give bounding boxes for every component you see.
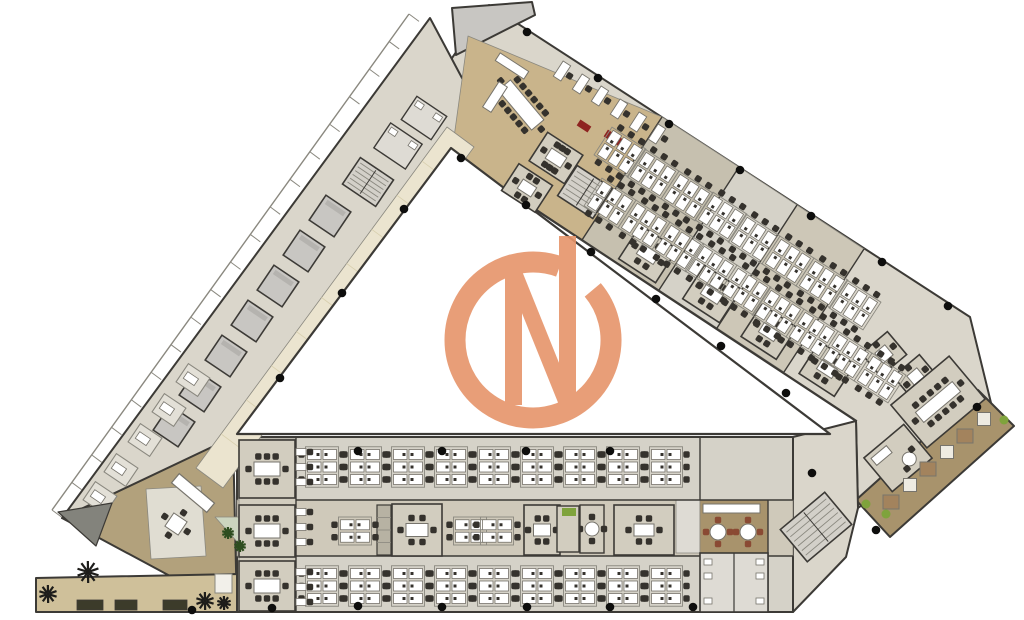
monitor <box>626 585 629 588</box>
chair <box>427 570 433 576</box>
wc-fixture <box>704 598 712 604</box>
monitor <box>325 585 328 588</box>
monitor <box>489 597 492 600</box>
monitor <box>669 478 672 481</box>
chair <box>656 527 662 533</box>
chair <box>599 464 605 470</box>
monitor <box>446 466 449 469</box>
column-dot <box>354 602 363 611</box>
plant-center <box>227 532 230 535</box>
monitor <box>465 536 468 539</box>
monitor <box>583 478 586 481</box>
chair <box>255 515 261 521</box>
monitor <box>626 453 629 456</box>
chair <box>625 527 631 533</box>
wall-line <box>241 544 246 546</box>
chair <box>419 515 425 521</box>
chair <box>307 569 313 575</box>
furniture-group <box>392 504 442 556</box>
chair <box>473 522 479 528</box>
column-dot <box>736 166 745 175</box>
table <box>634 524 654 536</box>
chair <box>514 534 520 540</box>
monitor <box>403 597 406 600</box>
chair <box>642 595 648 601</box>
chair <box>307 479 313 485</box>
column-dot <box>606 447 615 456</box>
monitor <box>350 536 353 539</box>
wc-fixture <box>704 573 712 579</box>
chair <box>470 595 476 601</box>
column-dot <box>665 120 674 129</box>
column-dot <box>782 389 791 398</box>
column-dot <box>807 212 816 221</box>
monitor <box>497 478 500 481</box>
monitor <box>360 597 363 600</box>
monitor <box>317 585 320 588</box>
monitor <box>360 478 363 481</box>
chair <box>427 451 433 457</box>
monitor <box>465 523 468 526</box>
chair <box>427 595 433 601</box>
chair <box>384 476 390 482</box>
chair <box>384 595 390 601</box>
monitor <box>575 478 578 481</box>
monitor <box>500 523 503 526</box>
monitor <box>317 453 320 456</box>
monitor <box>540 572 543 575</box>
chair <box>307 524 313 530</box>
monitor <box>360 572 363 575</box>
plant-center <box>46 592 50 596</box>
terrace-bench <box>163 600 187 610</box>
monitor <box>532 585 535 588</box>
monitor <box>411 572 414 575</box>
chair <box>384 570 390 576</box>
monitor <box>325 597 328 600</box>
wall-line <box>229 531 234 533</box>
chair <box>272 570 278 576</box>
chair <box>646 538 652 544</box>
monitor <box>446 572 449 575</box>
chair <box>745 517 751 523</box>
table <box>254 579 280 593</box>
monitor <box>661 597 664 600</box>
monitor <box>532 478 535 481</box>
chair <box>307 584 313 590</box>
monitor <box>575 453 578 456</box>
lounge-plant <box>1000 416 1009 425</box>
monitor <box>454 597 457 600</box>
wall-line <box>222 533 227 535</box>
chair <box>683 570 689 576</box>
furniture-group <box>239 561 295 611</box>
monitor <box>368 597 371 600</box>
touchdown-desk <box>296 584 306 591</box>
monitor <box>669 466 672 469</box>
monitor <box>575 597 578 600</box>
wc-fixture <box>704 559 712 565</box>
terrace-planter <box>215 574 232 593</box>
chair <box>733 529 739 535</box>
chair <box>513 583 519 589</box>
chair <box>384 464 390 470</box>
floor-plan-canvas <box>0 0 1024 620</box>
chair <box>307 539 313 545</box>
terrace-bench <box>77 600 103 610</box>
lounge-sofa <box>957 429 973 443</box>
table <box>406 524 428 537</box>
monitor <box>583 453 586 456</box>
chair <box>255 478 261 484</box>
monitor <box>532 572 535 575</box>
monitor <box>454 585 457 588</box>
touchdown-desk <box>296 524 306 531</box>
chair <box>556 583 562 589</box>
chair <box>642 451 648 457</box>
plant-center <box>222 601 225 604</box>
chair <box>642 583 648 589</box>
monitor <box>411 453 414 456</box>
chair <box>419 539 425 545</box>
cafe-table <box>710 524 726 540</box>
monitor <box>360 466 363 469</box>
chair <box>264 478 270 484</box>
monitor <box>489 466 492 469</box>
column-dot <box>268 604 277 613</box>
monitor <box>446 478 449 481</box>
chair <box>307 599 313 605</box>
monitor <box>532 597 535 600</box>
column-dot <box>354 447 363 456</box>
monitor <box>403 466 406 469</box>
monitor <box>358 523 361 526</box>
chair <box>715 517 721 523</box>
column-dot <box>457 154 466 163</box>
wall-line <box>310 152 320 159</box>
chair <box>408 515 414 521</box>
monitor <box>583 597 586 600</box>
planter-box <box>562 508 576 516</box>
chair <box>341 570 347 576</box>
column-dot <box>522 201 531 210</box>
chair <box>513 570 519 576</box>
chair <box>272 540 278 546</box>
chair <box>255 570 261 576</box>
monitor <box>497 572 500 575</box>
chair <box>683 595 689 601</box>
chair <box>535 538 541 544</box>
monitor <box>540 597 543 600</box>
chair <box>556 464 562 470</box>
furniture-group <box>296 464 313 471</box>
monitor <box>350 523 353 526</box>
monitor <box>626 597 629 600</box>
chair <box>272 453 278 459</box>
plant-center <box>203 599 207 603</box>
chair <box>372 534 378 540</box>
furniture-group <box>614 505 674 555</box>
monitor <box>411 597 414 600</box>
monitor <box>583 572 586 575</box>
chair <box>341 476 347 482</box>
lounge-seat <box>904 479 917 492</box>
wall-line <box>112 427 122 434</box>
monitor <box>454 466 457 469</box>
chair <box>255 453 261 459</box>
monitor <box>626 478 629 481</box>
wall-line <box>191 317 201 324</box>
chair <box>427 583 433 589</box>
furniture-group <box>296 524 313 531</box>
monitor <box>317 572 320 575</box>
monitor <box>358 536 361 539</box>
column-dot <box>944 302 953 311</box>
furniture-group <box>239 440 295 498</box>
chair <box>513 476 519 482</box>
chair <box>384 583 390 589</box>
furniture-group <box>296 599 313 606</box>
monitor <box>583 466 586 469</box>
monitor <box>454 453 457 456</box>
monitor <box>411 585 414 588</box>
chair <box>683 464 689 470</box>
touchdown-desk <box>296 599 306 606</box>
chair <box>599 595 605 601</box>
lounge-seat <box>941 446 954 459</box>
furniture-group <box>296 449 313 456</box>
wall-line <box>389 42 399 49</box>
wall-line <box>131 400 141 407</box>
wall-line <box>290 179 300 186</box>
column-dot <box>594 74 603 83</box>
column-dot <box>587 248 596 257</box>
chair <box>331 534 337 540</box>
chair <box>331 522 337 528</box>
monitor <box>317 478 320 481</box>
chair <box>636 538 642 544</box>
column-dot <box>523 603 532 612</box>
monitor <box>325 453 328 456</box>
monitor <box>618 585 621 588</box>
monitor <box>669 597 672 600</box>
chair <box>372 522 378 528</box>
chair <box>272 595 278 601</box>
touchdown-desk <box>296 569 306 576</box>
furniture-group <box>296 509 313 516</box>
monitor <box>540 478 543 481</box>
furniture-group <box>577 505 607 553</box>
monitor <box>368 466 371 469</box>
chair <box>341 583 347 589</box>
wall-line <box>92 455 102 462</box>
monitor <box>661 585 664 588</box>
wall-line <box>171 345 181 352</box>
column-dot <box>438 447 447 456</box>
chair <box>556 451 562 457</box>
lounge-sofa <box>920 462 936 476</box>
monitor <box>411 478 414 481</box>
cafe-table <box>740 524 756 540</box>
chair <box>513 451 519 457</box>
monitor <box>540 585 543 588</box>
monitor <box>618 572 621 575</box>
chair <box>307 449 313 455</box>
column-dot <box>973 403 982 412</box>
monitor <box>446 453 449 456</box>
monitor <box>669 453 672 456</box>
monitor <box>618 453 621 456</box>
wc-fixture <box>756 573 764 579</box>
monitor <box>497 466 500 469</box>
chair <box>646 515 652 521</box>
chair <box>513 464 519 470</box>
chair <box>282 466 288 472</box>
lounge-plant <box>862 500 871 509</box>
chair <box>599 570 605 576</box>
monitor <box>500 536 503 539</box>
chair <box>430 527 436 533</box>
monitor <box>669 572 672 575</box>
chair <box>599 476 605 482</box>
wall-line <box>250 234 260 241</box>
monitor <box>492 523 495 526</box>
chair <box>264 595 270 601</box>
wall-line <box>211 290 221 297</box>
chair <box>427 464 433 470</box>
wall-line <box>234 546 239 548</box>
monitor <box>317 597 320 600</box>
chair <box>599 583 605 589</box>
table <box>534 524 551 536</box>
monitor <box>540 453 543 456</box>
chair <box>703 529 709 535</box>
touchdown-desk <box>296 479 306 486</box>
monitor <box>661 466 664 469</box>
column-dot <box>438 603 447 612</box>
column-dot <box>523 28 532 37</box>
touchdown-desk <box>296 539 306 546</box>
wall-line <box>231 262 241 269</box>
monitor <box>532 466 535 469</box>
plant-center <box>239 545 242 548</box>
monitor <box>661 572 664 575</box>
monitor <box>618 478 621 481</box>
monitor <box>618 597 621 600</box>
column-dot <box>400 205 409 214</box>
wc-fixture <box>756 559 764 565</box>
furniture-group <box>296 479 313 486</box>
chair <box>408 539 414 545</box>
chair <box>745 541 751 547</box>
furniture-group <box>296 584 313 591</box>
touchdown-desk <box>296 509 306 516</box>
monitor <box>368 478 371 481</box>
monitor <box>489 453 492 456</box>
monitor <box>368 453 371 456</box>
monitor <box>403 572 406 575</box>
wall-line <box>330 124 340 131</box>
chair <box>470 464 476 470</box>
pantry-counter <box>703 504 760 513</box>
monitor <box>575 466 578 469</box>
chair <box>757 529 763 535</box>
chair <box>556 570 562 576</box>
monitor <box>626 572 629 575</box>
monitor <box>403 478 406 481</box>
chair <box>535 515 541 521</box>
monitor <box>325 478 328 481</box>
chair <box>525 527 531 533</box>
monitor <box>575 572 578 575</box>
round-table <box>585 522 599 536</box>
chair <box>307 464 313 470</box>
monitor <box>446 597 449 600</box>
monitor <box>532 453 535 456</box>
chair <box>715 541 721 547</box>
chair <box>272 478 278 484</box>
monitor <box>661 478 664 481</box>
wall-line <box>409 14 419 21</box>
furniture-group <box>239 505 295 557</box>
chair <box>245 466 251 472</box>
monitor <box>489 585 492 588</box>
chair <box>264 453 270 459</box>
chair <box>470 451 476 457</box>
chair <box>470 476 476 482</box>
monitor <box>489 478 492 481</box>
chair <box>255 540 261 546</box>
monitor <box>618 466 621 469</box>
column-dot <box>808 469 817 478</box>
chair <box>636 515 642 521</box>
wall-line <box>270 207 280 214</box>
furniture-group <box>524 505 560 555</box>
chair <box>264 540 270 546</box>
plant-center <box>86 570 91 575</box>
terrace-bench <box>115 600 137 610</box>
column-dot <box>188 606 197 615</box>
monitor <box>497 453 500 456</box>
chair <box>473 534 479 540</box>
chair <box>556 476 562 482</box>
chair <box>282 583 288 589</box>
furniture-group <box>296 539 313 546</box>
chair <box>589 514 595 520</box>
chair <box>543 515 549 521</box>
wall-line <box>369 69 379 76</box>
chair <box>556 595 562 601</box>
chair <box>307 509 313 515</box>
touchdown-desk <box>296 464 306 471</box>
table <box>254 462 280 476</box>
lounge-sofa <box>883 495 899 509</box>
monitor <box>454 478 457 481</box>
monitor <box>661 453 664 456</box>
chair <box>245 528 251 534</box>
lounge-seat <box>978 413 991 426</box>
chair <box>514 522 520 528</box>
chair <box>245 583 251 589</box>
monitor <box>446 585 449 588</box>
chair <box>397 527 403 533</box>
monitor <box>411 466 414 469</box>
table <box>254 524 280 538</box>
monitor <box>368 585 371 588</box>
chair <box>683 451 689 457</box>
monitor <box>626 466 629 469</box>
column-dot <box>522 447 531 456</box>
